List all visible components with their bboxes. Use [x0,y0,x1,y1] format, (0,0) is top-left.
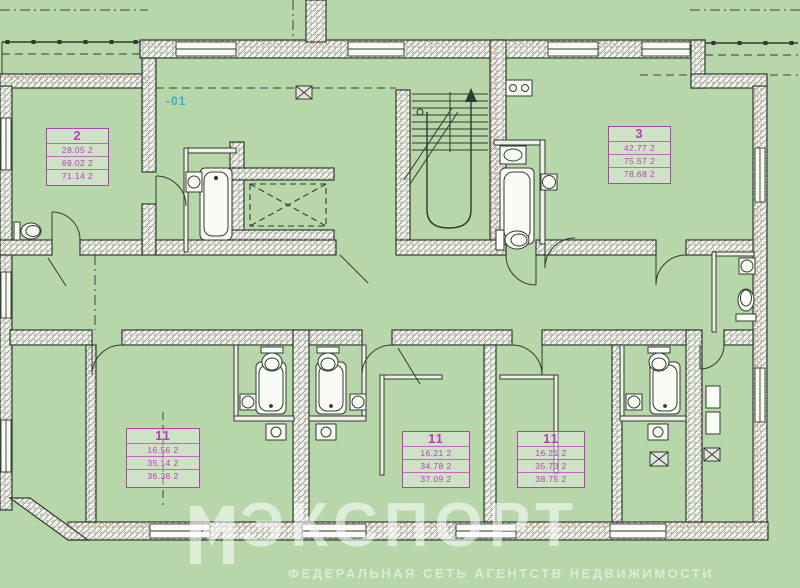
sink-icon [541,174,557,190]
sink-icon [266,424,286,440]
area-value: 34.78 2 [403,459,469,472]
area-value: 35.14 2 [127,456,199,469]
vent-shaft-icon [704,448,720,461]
floor-plan-drawing [0,0,800,588]
apartment-number: 2 [47,129,108,143]
sink-icon [186,172,202,192]
area-value: 16.56 2 [127,443,199,456]
vent-shaft-icon [650,452,668,466]
apartment-stamp: 3 42.77 2 75.57 2 78.68 2 [608,126,671,184]
area-value: 69.02 2 [47,156,108,169]
toilet-icon [496,230,529,250]
apartment-stamp: 2 28.05 2 69.02 2 71.14 2 [46,128,109,186]
area-value: 36.36 2 [127,469,199,482]
level-label: -01 [166,94,186,108]
apartment-number: 11 [403,432,469,446]
area-value: 16.21 2 [518,446,584,459]
area-value: 78.68 2 [609,167,670,180]
area-value: 75.57 2 [609,154,670,167]
sink-icon [506,80,532,96]
area-value: 28.05 2 [47,143,108,156]
sink-icon [240,394,256,410]
sink-icon [739,258,755,274]
area-value: 42.77 2 [609,141,670,154]
toilet-icon [648,347,670,371]
vent-shaft-icon [296,86,312,99]
apartment-stamp: 11 16.21 2 34.78 2 37.09 2 [402,431,470,488]
area-value: 37.09 2 [403,472,469,485]
bathtub-icon [200,168,232,240]
sink-icon [626,394,642,410]
apartment-number: 3 [609,127,670,141]
apartment-stamp: 11 16.56 2 35.14 2 36.36 2 [126,428,200,488]
toilet-icon [14,222,41,240]
area-value: 35.73 2 [518,459,584,472]
apartment-number: 11 [127,429,199,443]
toilet-icon [261,347,283,371]
apartment-number: 11 [518,432,584,446]
sink-icon [350,394,366,410]
area-value: 38.75 2 [518,472,584,485]
floor-plan-canvas: -01 2 28.05 2 69.02 2 71.14 2 3 42.77 2 … [0,0,800,588]
area-value: 16.21 2 [403,446,469,459]
sink-icon [316,424,336,440]
area-value: 71.14 2 [47,169,108,182]
sink-icon [500,146,526,164]
sink-icon [648,424,668,440]
toilet-icon [317,347,339,371]
apartment-stamp: 11 16.21 2 35.73 2 38.75 2 [517,431,585,488]
toilet-icon [736,289,756,321]
